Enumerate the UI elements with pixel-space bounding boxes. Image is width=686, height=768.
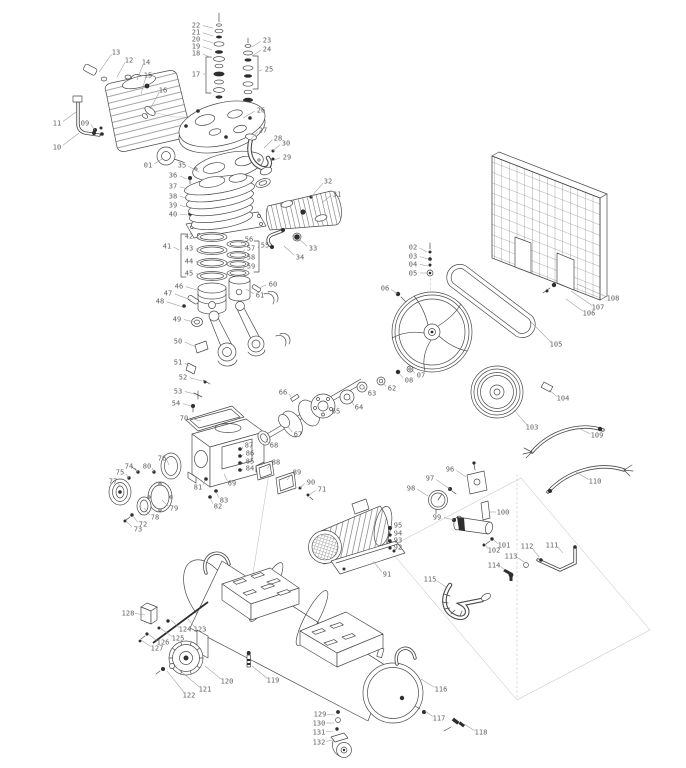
callout-leader bbox=[185, 342, 196, 347]
callout-label: 22 bbox=[192, 21, 200, 29]
callout-label: 105 bbox=[550, 340, 563, 348]
callout-leader bbox=[183, 404, 191, 406]
callout-label: 30 bbox=[282, 139, 290, 147]
callout-label: 05 bbox=[409, 269, 417, 277]
callout-label: 77 bbox=[109, 477, 117, 485]
caster-assembly bbox=[331, 710, 352, 757]
callout-label: 80 bbox=[143, 462, 151, 470]
callout-leader bbox=[578, 428, 590, 434]
callout-leader bbox=[264, 140, 272, 148]
callout-label: 123 bbox=[194, 625, 207, 633]
callout-leader bbox=[141, 640, 151, 647]
callout-label: 100 bbox=[497, 508, 510, 516]
callout-label: 94 bbox=[394, 529, 402, 537]
callout-label: 108 bbox=[607, 294, 620, 302]
callout-leader bbox=[420, 248, 427, 252]
tank-bolt bbox=[247, 651, 251, 667]
callout-label: 113 bbox=[505, 552, 518, 560]
callout-label: 01 bbox=[144, 161, 152, 169]
callout-leader bbox=[174, 247, 179, 250]
callout-leader bbox=[258, 246, 259, 248]
callout-leader bbox=[399, 373, 403, 378]
callout-leader bbox=[274, 158, 280, 160]
callout-leader bbox=[190, 378, 202, 381]
side-plates bbox=[256, 461, 313, 500]
callout-label: 15 bbox=[144, 71, 152, 79]
cylinder-head bbox=[174, 93, 270, 161]
callout-leader bbox=[210, 498, 213, 504]
callout-label: 56 bbox=[245, 235, 253, 243]
callout-leader bbox=[309, 490, 316, 495]
callout-label: 41 bbox=[163, 242, 171, 250]
callout-label: 90 bbox=[307, 478, 315, 486]
callout-label: 96 bbox=[446, 465, 454, 473]
callout-leader bbox=[420, 257, 428, 259]
callout-label: 60 bbox=[269, 280, 277, 288]
callout-label: 107 bbox=[592, 303, 605, 311]
callout-leader bbox=[417, 489, 428, 496]
callout-label: 129 bbox=[314, 710, 327, 718]
callout-label: 36 bbox=[169, 171, 177, 179]
callout-label: 81 bbox=[194, 483, 202, 491]
callout-leader bbox=[126, 521, 132, 527]
callout-leader bbox=[259, 70, 262, 71]
callout-leader bbox=[576, 472, 589, 480]
callout-label: 117 bbox=[433, 714, 446, 722]
callout-label: 69 bbox=[228, 479, 236, 487]
callout-leader bbox=[203, 47, 212, 50]
gauge-and-check-valve bbox=[429, 461, 494, 546]
callout-label: 47 bbox=[164, 289, 172, 297]
callout-label: 33 bbox=[309, 244, 317, 252]
callout-label: 83 bbox=[220, 496, 228, 504]
callout-label: 32 bbox=[324, 177, 332, 185]
callout-label: 70 bbox=[180, 414, 188, 422]
callout-label: 16 bbox=[159, 86, 167, 94]
callout-leader bbox=[148, 634, 157, 640]
callout-label: 110 bbox=[589, 477, 602, 485]
callout-label: 55 bbox=[261, 241, 269, 249]
callout-label: 92 bbox=[394, 543, 402, 551]
callout-label: 78 bbox=[151, 513, 159, 521]
callout-label: 12 bbox=[125, 56, 133, 64]
callout-label: 85 bbox=[246, 457, 254, 465]
callout-label: 109 bbox=[591, 431, 604, 439]
callout-leader bbox=[421, 679, 435, 688]
callout-label: 48 bbox=[156, 297, 164, 305]
callout-leader bbox=[436, 580, 446, 587]
callout-leader bbox=[133, 516, 138, 522]
callout-leader bbox=[63, 133, 79, 145]
callout-leader bbox=[531, 322, 551, 342]
callout-leader bbox=[259, 285, 266, 288]
callout-label: 18 bbox=[192, 49, 200, 57]
callout-label: 98 bbox=[407, 484, 415, 492]
callout-leader bbox=[558, 547, 563, 553]
callout-label: 44 bbox=[185, 257, 193, 265]
callout-label: 02 bbox=[409, 243, 417, 251]
callout-label: 17 bbox=[192, 70, 200, 78]
callout-leader bbox=[326, 740, 332, 742]
callout-leader bbox=[185, 392, 195, 394]
callout-leader bbox=[436, 480, 450, 489]
callout-label: 25 bbox=[265, 65, 273, 73]
diagram-canvas: 0102030405060708091011121314151617181920… bbox=[0, 0, 686, 768]
callout-label: 46 bbox=[175, 282, 183, 290]
callout-leader bbox=[203, 33, 213, 36]
connecting-rods bbox=[186, 291, 290, 412]
callout-label: 50 bbox=[174, 337, 182, 345]
callout-label: 127 bbox=[151, 644, 164, 652]
callout-label: 66 bbox=[279, 388, 287, 396]
callout-leader bbox=[373, 561, 382, 572]
callout-leader bbox=[425, 711, 433, 717]
callout-label: 39 bbox=[169, 201, 177, 209]
callout-label: 121 bbox=[199, 685, 212, 693]
callout-label: 03 bbox=[409, 252, 417, 260]
callout-label: 24 bbox=[263, 45, 271, 53]
callout-leader bbox=[566, 299, 583, 311]
callout-leader bbox=[327, 714, 335, 715]
callout-label: 51 bbox=[174, 358, 182, 366]
callout-label: 53 bbox=[174, 387, 182, 395]
pulley-assembly bbox=[471, 366, 553, 418]
crankshaft-assembly bbox=[255, 379, 367, 447]
callout-label: 43 bbox=[185, 244, 193, 252]
callout-label: 09 bbox=[81, 119, 89, 127]
callout-label: 35 bbox=[178, 161, 186, 169]
callout-label: 95 bbox=[394, 521, 402, 529]
callout-label: 75 bbox=[116, 468, 124, 476]
callout-label: 86 bbox=[246, 449, 254, 457]
callout-label: 10 bbox=[53, 143, 61, 151]
callout-label: 76 bbox=[158, 454, 166, 462]
callout-label: 63 bbox=[368, 389, 376, 397]
callout-label: 59 bbox=[247, 262, 255, 270]
callout-leader bbox=[252, 41, 261, 47]
discharge-hoses bbox=[523, 427, 633, 493]
callout-label: 89 bbox=[293, 468, 301, 476]
cooler-pipe bbox=[268, 228, 301, 249]
callout-leader bbox=[420, 264, 428, 266]
callout-label: 49 bbox=[173, 315, 181, 323]
callout-label: 88 bbox=[272, 458, 280, 466]
callout-label: 20 bbox=[192, 35, 200, 43]
callout-label: 42 bbox=[185, 232, 193, 240]
callout-label: 21 bbox=[192, 28, 200, 36]
aftercooler bbox=[266, 191, 341, 249]
callout-leader bbox=[117, 63, 125, 77]
unloader-pipe bbox=[504, 545, 577, 581]
callout-leader bbox=[289, 394, 292, 398]
callout-leader bbox=[391, 289, 397, 294]
callout-label: 08 bbox=[405, 376, 413, 384]
callout-leader bbox=[464, 724, 475, 731]
callout-label: 14 bbox=[142, 58, 150, 66]
callout-label: 125 bbox=[172, 634, 185, 642]
callout-label: 13 bbox=[112, 48, 120, 56]
callout-label: 102 bbox=[488, 546, 501, 554]
callout-label: 111 bbox=[546, 541, 559, 549]
callout-label: 120 bbox=[221, 677, 234, 685]
callout-label: 11 bbox=[53, 119, 61, 127]
callout-label: 99 bbox=[433, 513, 441, 521]
callout-label: 26 bbox=[257, 106, 265, 114]
callout-leader bbox=[126, 474, 129, 478]
callout-leader bbox=[216, 492, 219, 498]
callout-label: 57 bbox=[247, 244, 255, 252]
callout-label: 131 bbox=[313, 728, 326, 736]
callout-label: 128 bbox=[122, 609, 135, 617]
callout-leader bbox=[252, 50, 261, 56]
electric-motor bbox=[309, 499, 406, 574]
callout-leader bbox=[203, 26, 213, 28]
callout-label: 52 bbox=[179, 373, 187, 381]
callout-label: 54 bbox=[172, 399, 180, 407]
callout-label: 97 bbox=[426, 474, 434, 482]
callout-label: 112 bbox=[521, 542, 534, 550]
callout-label: 116 bbox=[435, 685, 448, 693]
callout-label: 132 bbox=[313, 738, 326, 746]
callout-label: 04 bbox=[409, 260, 417, 268]
callout-label: 23 bbox=[263, 36, 271, 44]
callout-label: 40 bbox=[169, 210, 177, 218]
grille-bolt bbox=[543, 283, 556, 293]
callout-label: 68 bbox=[270, 441, 278, 449]
callout-label: 118 bbox=[475, 728, 488, 736]
callout-label: 114 bbox=[488, 561, 501, 569]
callout-label: 27 bbox=[259, 126, 267, 134]
flex-hose bbox=[442, 585, 492, 618]
callout-leader bbox=[180, 176, 187, 179]
callout-label: 07 bbox=[417, 371, 425, 379]
callout-label: 37 bbox=[169, 182, 177, 190]
callout-label: 103 bbox=[526, 423, 539, 431]
callout-label: 73 bbox=[134, 525, 142, 533]
callout-label: 91 bbox=[383, 570, 391, 578]
flywheel-bolt-stack bbox=[427, 243, 433, 276]
callout-leader bbox=[517, 557, 524, 562]
callout-label: 38 bbox=[169, 192, 177, 200]
callout-leader bbox=[180, 214, 187, 215]
callout-label: 74 bbox=[125, 462, 133, 470]
callout-label: 29 bbox=[283, 153, 291, 161]
cooling-grille-panel bbox=[492, 152, 607, 300]
oil-pipe bbox=[73, 96, 104, 136]
callout-label: 31 bbox=[333, 190, 341, 198]
callout-leader bbox=[63, 112, 76, 121]
callout-label: 67 bbox=[294, 430, 302, 438]
callout-label: 71 bbox=[318, 485, 326, 493]
callout-label: 79 bbox=[170, 504, 178, 512]
callout-leader bbox=[273, 145, 280, 151]
callout-leader bbox=[205, 666, 221, 679]
callout-label: 84 bbox=[246, 464, 254, 472]
callout-label: 122 bbox=[183, 691, 196, 699]
air-tank-assembly bbox=[139, 551, 465, 757]
callout-label: 93 bbox=[394, 536, 402, 544]
callout-label: 124 bbox=[179, 625, 192, 633]
callout-leader bbox=[99, 54, 111, 72]
callout-leader bbox=[167, 302, 183, 307]
callout-leader bbox=[186, 287, 197, 290]
callout-label: 34 bbox=[296, 253, 304, 261]
callout-leader bbox=[252, 666, 267, 678]
callout-label: 64 bbox=[355, 403, 363, 411]
callout-label: 119 bbox=[267, 676, 280, 684]
callout-leader bbox=[91, 125, 95, 130]
callout-label: 58 bbox=[247, 253, 255, 261]
callout-label: 45 bbox=[185, 269, 193, 277]
cylinder-block bbox=[183, 171, 266, 238]
callout-label: 06 bbox=[381, 284, 389, 292]
valve-disc-stacks bbox=[206, 13, 258, 102]
callout-leader bbox=[326, 731, 333, 732]
callout-label: 104 bbox=[557, 394, 570, 402]
callout-leader bbox=[180, 205, 187, 207]
callout-label: 115 bbox=[424, 575, 437, 583]
callout-leader bbox=[203, 40, 213, 43]
callout-label: 65 bbox=[332, 407, 340, 415]
callout-label: 87 bbox=[245, 441, 253, 449]
callout-label: 130 bbox=[313, 719, 326, 727]
callout-leader bbox=[284, 246, 294, 255]
callout-leader bbox=[203, 54, 212, 58]
callout-leader bbox=[456, 470, 466, 477]
callout-label: 19 bbox=[192, 42, 200, 50]
callout-leader bbox=[500, 566, 505, 570]
oil-reservoir-assembly bbox=[83, 64, 191, 152]
callout-label: 62 bbox=[388, 384, 396, 392]
callout-label: 61 bbox=[256, 291, 264, 299]
callout-leader bbox=[300, 484, 305, 488]
callout-leader bbox=[299, 239, 307, 246]
